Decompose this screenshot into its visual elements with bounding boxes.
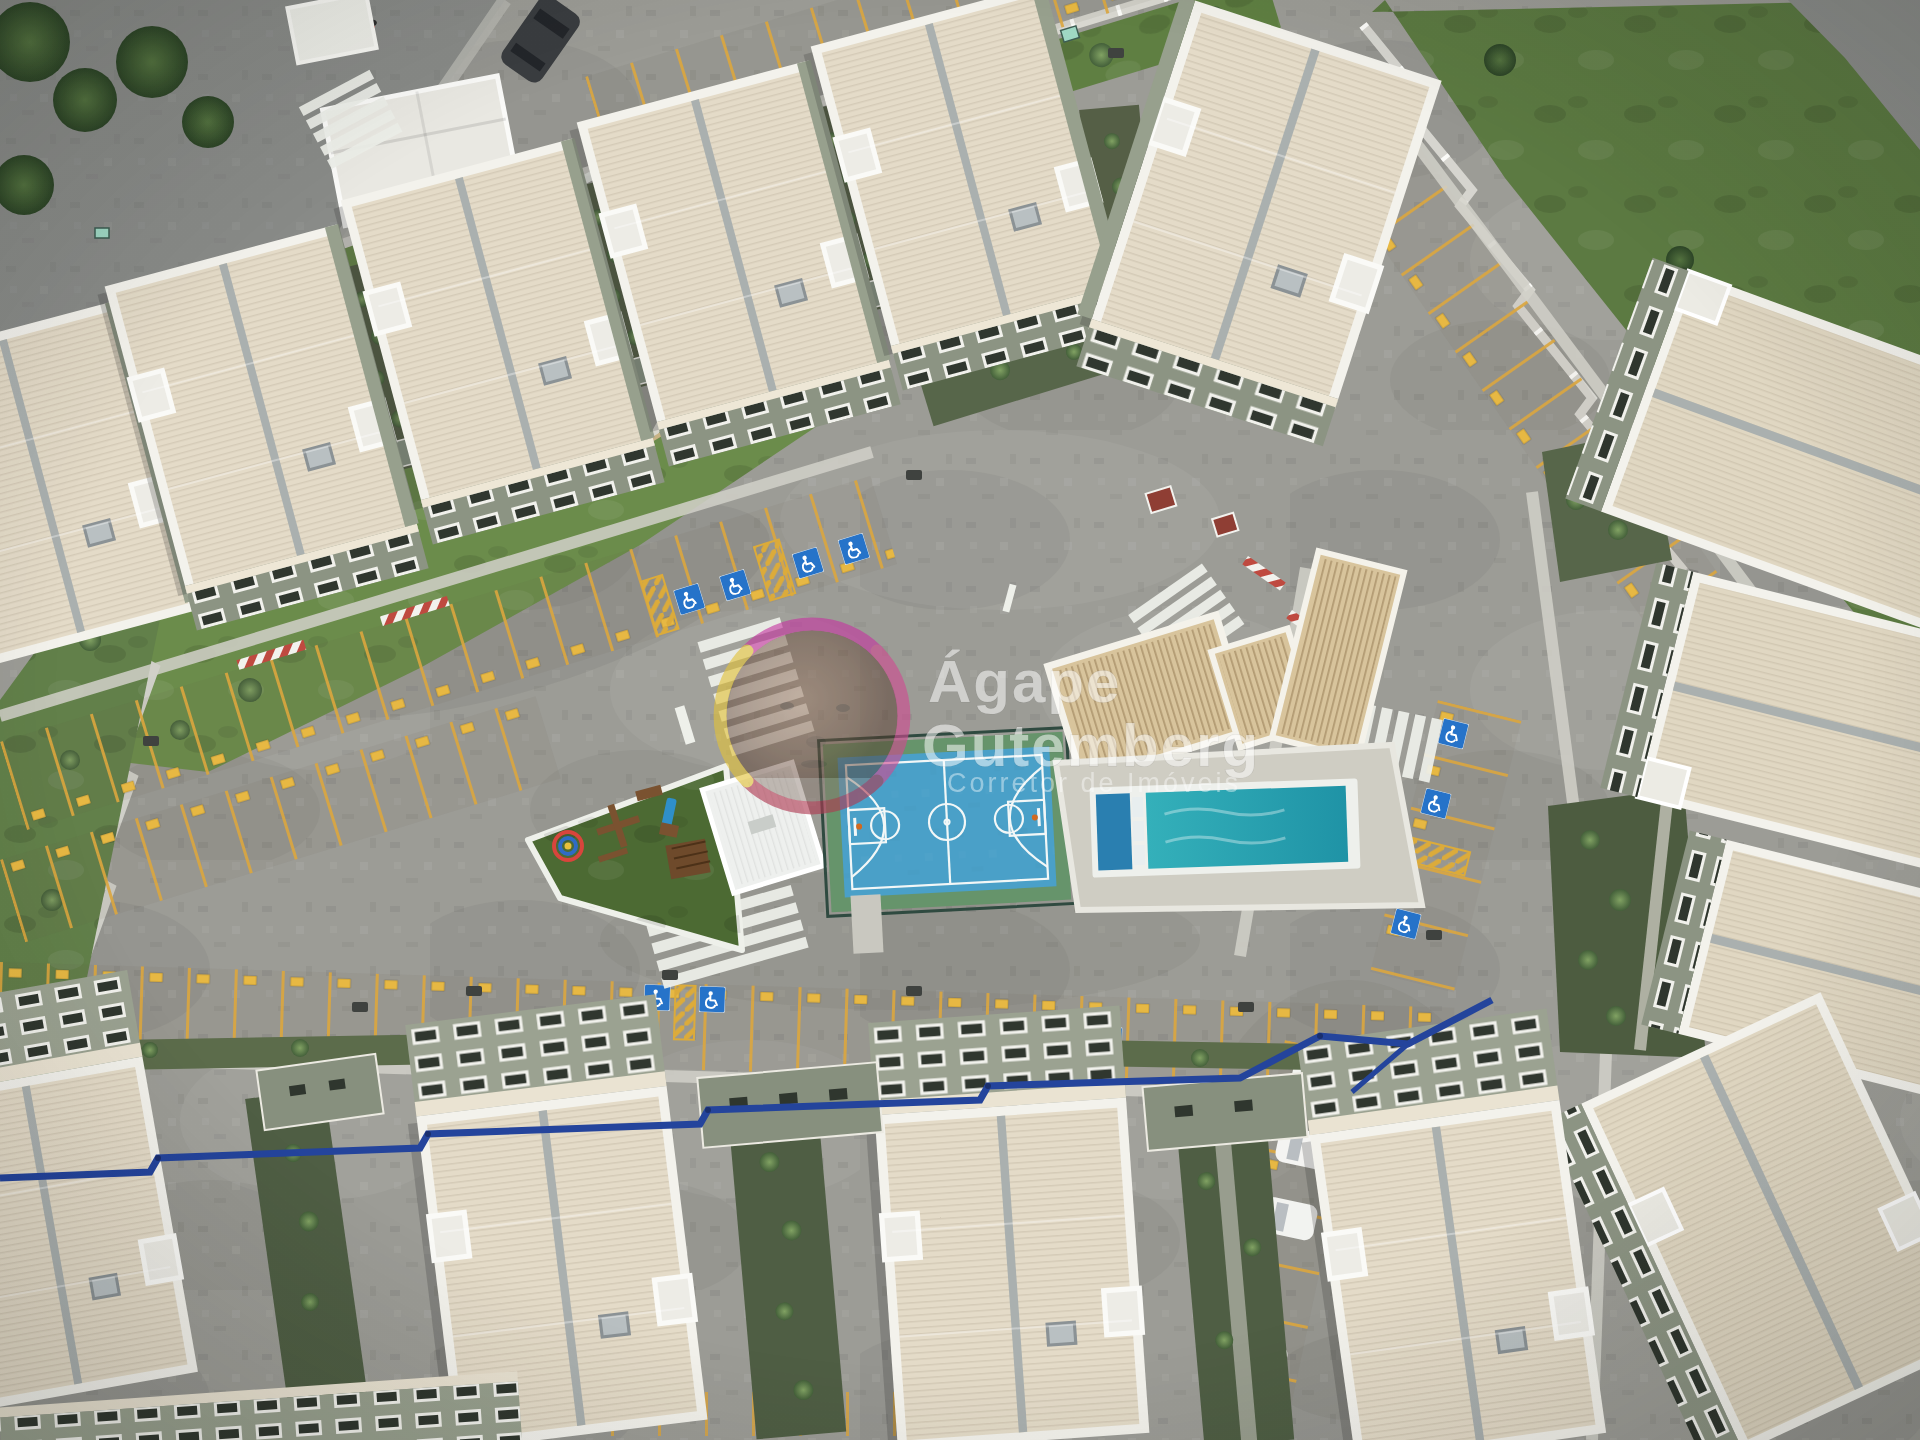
vignette-overlay	[0, 0, 1920, 1440]
aerial-photo: Ágape Gutemberg Corretor de Imóveis	[0, 0, 1920, 1440]
aerial-photo-svg: Ágape Gutemberg Corretor de Imóveis	[0, 0, 1920, 1440]
